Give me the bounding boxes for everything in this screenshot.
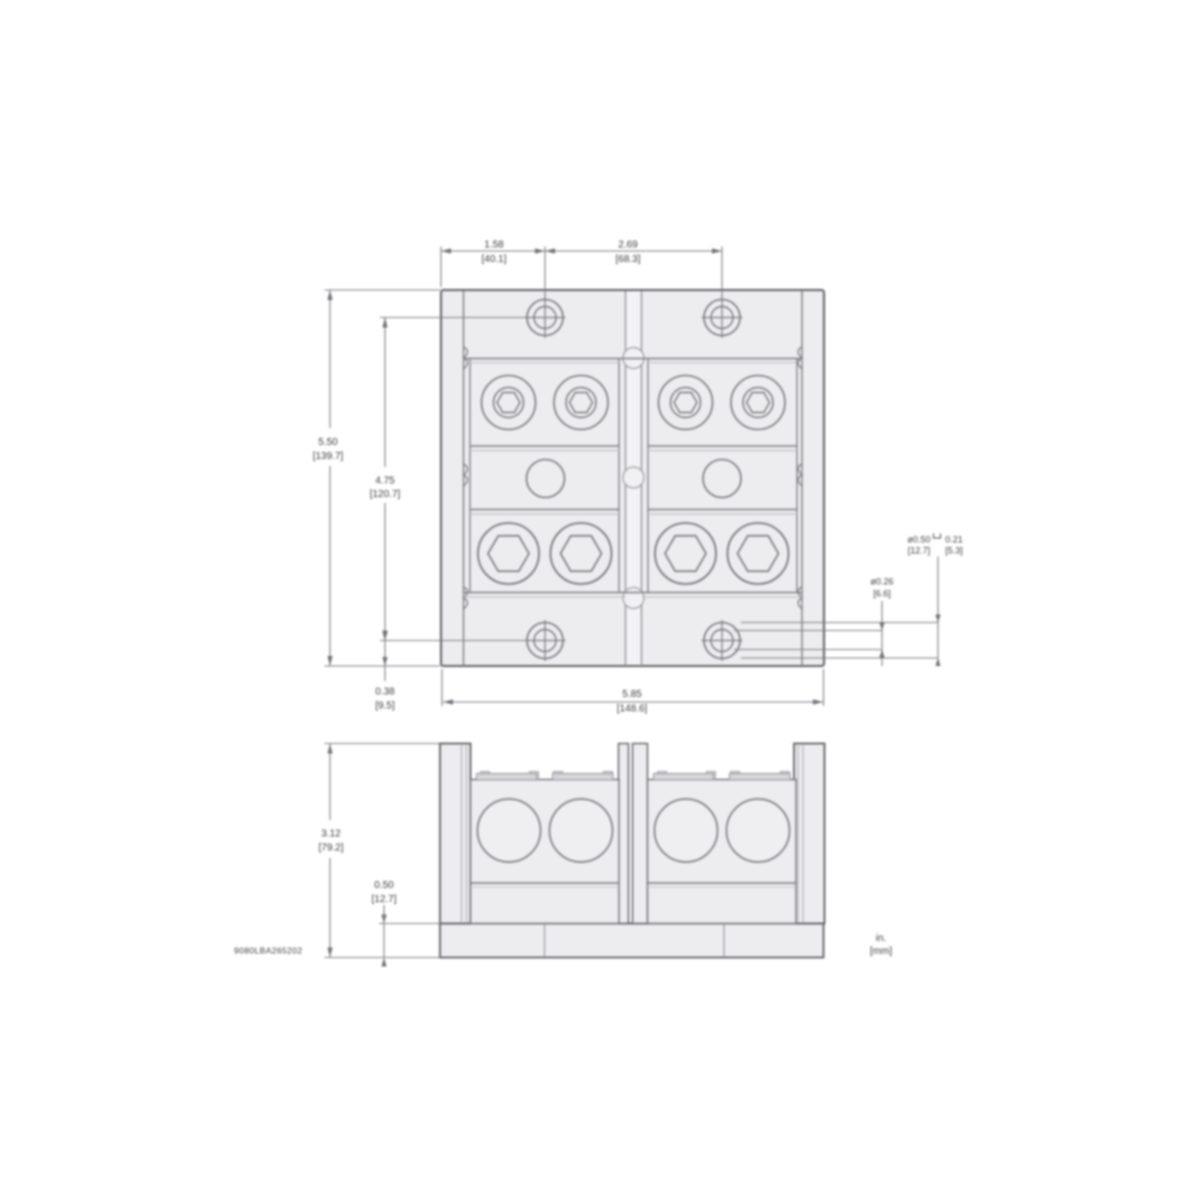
svg-text:[6.6]: [6.6]: [873, 589, 891, 599]
svg-text:[68.3]: [68.3]: [615, 254, 640, 265]
svg-text:2.69: 2.69: [618, 240, 638, 251]
svg-text:ø0.26: ø0.26: [870, 577, 893, 587]
svg-text:in.: in.: [876, 933, 887, 944]
svg-text:[12.7]: [12.7]: [371, 894, 396, 905]
svg-text:3.12: 3.12: [321, 829, 341, 840]
svg-text:0.21: 0.21: [945, 535, 963, 545]
svg-text:[5.3]: [5.3]: [945, 546, 963, 556]
svg-text:[148.6]: [148.6]: [617, 704, 648, 715]
svg-text:[120.7]: [120.7]: [370, 489, 401, 500]
svg-text:[40.1]: [40.1]: [481, 254, 506, 265]
svg-text:5.50: 5.50: [318, 437, 338, 448]
svg-text:[mm]: [mm]: [870, 946, 892, 957]
svg-text:4.75: 4.75: [375, 476, 395, 487]
svg-text:[139.7]: [139.7]: [313, 451, 344, 462]
svg-text:[79.2]: [79.2]: [318, 843, 343, 854]
svg-text:5.85: 5.85: [622, 689, 642, 700]
svg-text:ø0.50: ø0.50: [907, 535, 930, 545]
svg-text:9080LBA265202: 9080LBA265202: [234, 946, 303, 956]
svg-text:1.58: 1.58: [484, 240, 504, 251]
svg-text:[9.5]: [9.5]: [375, 701, 395, 712]
svg-text:[12.7]: [12.7]: [908, 546, 931, 556]
svg-text:0.50: 0.50: [374, 880, 394, 891]
svg-text:0.38: 0.38: [375, 687, 395, 698]
